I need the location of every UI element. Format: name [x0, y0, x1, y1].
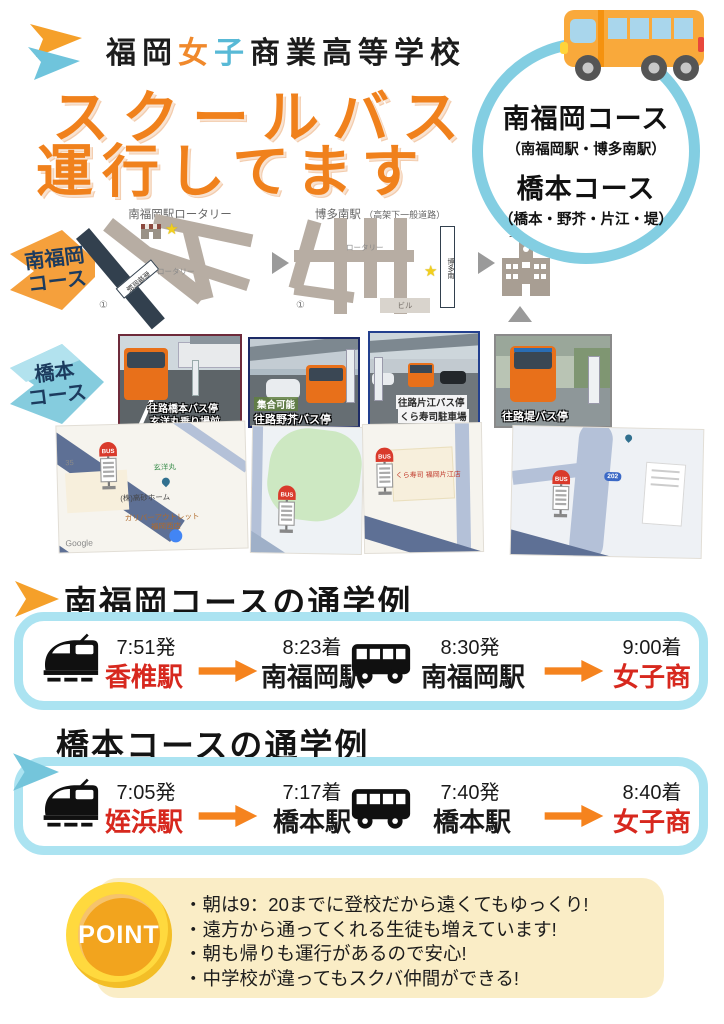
svg-text:BUS: BUS — [280, 492, 293, 498]
j2-seg2-depart-name: 橋本駅 — [414, 802, 530, 839]
j1-seg2-depart-name: 南福岡駅 — [410, 657, 536, 694]
photo2-caption-line2: 往路野芥バス停 — [254, 411, 331, 427]
j2-seg1-depart-name: 姪浜駅 — [92, 802, 196, 839]
route-arrow-right-icon — [478, 252, 495, 274]
orange-arrow-icon — [198, 805, 258, 827]
photo-katae-bus-stop: 往路片江バス停 くら寿司駐車場 — [368, 331, 480, 428]
j1-seg2-arrive-time: 9:00着 — [606, 631, 698, 660]
map-a-route1-marker: ① — [99, 300, 108, 311]
photo3-caption-line2: くら寿司駐車場 — [398, 409, 469, 423]
map-b-route1-marker: ① — [296, 300, 305, 311]
badge-course2-stops: （橋本・野芥・片江・堤） — [483, 208, 689, 229]
photo-noke-bus-stop: 集合可能 往路野芥バス停 — [248, 337, 360, 428]
point-bullet-2: ・遠方から通ってくれる生徒も増えています! — [184, 918, 654, 943]
orange-arrow-icon — [544, 805, 604, 827]
j1-seg1-arrive-time: 8:23着 — [262, 631, 362, 660]
photo-hashimoto-bus-stop: 往路橋本バス停 玄洋丸乗り場前 — [118, 334, 242, 428]
school-name-part1: 福岡 — [106, 37, 178, 70]
hashimoto-course-flag: 橋本 コース — [4, 340, 108, 428]
j2-seg2-arrive-time: 8:40着 — [606, 776, 698, 805]
badge-course1-name: 南福岡コース — [483, 97, 689, 136]
gmap3-kurasushi-label: くら寿司 福岡片江店 — [396, 469, 461, 480]
j2-seg2-depart-time: 7:40発 — [420, 776, 520, 805]
bus-stop-sign-icon: BUS — [97, 439, 120, 492]
point-badge: POINT — [66, 882, 172, 988]
j1-seg2-arrive-name: 女子商 — [606, 657, 698, 694]
map-b-station-label: 博多南 — [440, 226, 455, 308]
svg-text:BUS: BUS — [102, 449, 115, 455]
bus-stop-sign-icon: BUS — [373, 444, 396, 496]
map-b-star-icon: ★ — [424, 262, 437, 280]
j2-seg1-arrive-time: 7:17着 — [262, 776, 362, 805]
gmap4-route-badge: 202 — [604, 472, 621, 481]
google-watermark: Google — [65, 538, 93, 549]
map-b-rotary-label: ロータリー — [346, 242, 384, 253]
school-name-part3: 子 — [214, 37, 250, 70]
badge-course1-stops: （南福岡駅・博多南駅） — [483, 138, 689, 159]
school-bus-illustration-icon — [548, 4, 712, 92]
svg-text:BUS: BUS — [555, 477, 568, 483]
point-badge-label: POINT — [78, 921, 159, 950]
j1-seg2-depart-time: 8:30発 — [420, 631, 520, 660]
gmap-katae: くら寿司 福岡片江店 BUS — [363, 423, 483, 553]
j2-seg1-depart-time: 7:05発 — [100, 776, 192, 805]
bus-stop-sign-icon: BUS — [549, 467, 572, 519]
map-pin-icon — [624, 433, 634, 443]
route-arrow-right-icon — [272, 252, 289, 274]
gmap1-restaurant-label: 玄洋丸 — [153, 461, 176, 473]
badge-course2-name: 橋本コース — [483, 167, 689, 206]
school-name: 福岡女子商業高等学校 — [106, 28, 466, 72]
map-minamifukuoka-rotary: 南福岡駅ロータリー 南福岡駅 ★ ロータリー ① — [95, 206, 265, 316]
main-title-line2: 運行してます — [36, 126, 427, 208]
j1-seg1-depart-name: 香椎駅 — [92, 657, 196, 694]
orange-arrow-icon — [544, 660, 604, 682]
photo-tsutsumi-bus-stop: 往路堤バス停 — [494, 334, 612, 428]
bus-icon — [350, 783, 412, 831]
store-icon — [141, 224, 161, 240]
photo4-caption-line1: 往路堤バス停 — [502, 408, 568, 424]
point-bullets: ・朝は9：20までに登校だから遠くてもゆっくり! ・遠方から通ってくれる生徒も増… — [184, 893, 654, 991]
j1-seg1-depart-time: 7:51発 — [100, 631, 192, 660]
flyer-page: 福岡女子商業高等学校 スクールバス 運行してます 南福岡コース （南福岡駅・博多… — [0, 0, 724, 1024]
train-icon — [38, 632, 100, 686]
map-b-building-label: ビル — [380, 298, 430, 313]
bus-icon — [350, 638, 412, 686]
j2-seg2-arrive-name: 女子商 — [606, 802, 698, 839]
point-bullet-3: ・朝も帰りも運行があるので安心! — [184, 942, 654, 967]
school-name-part2: 女 — [178, 37, 214, 70]
school-name-part4: 商業高等学校 — [250, 37, 466, 70]
route-arrow-up-icon — [508, 306, 532, 322]
map-marker-icon — [169, 529, 182, 542]
photo3-caption-line1: 往路片江バス停 — [396, 395, 467, 409]
gmap-tsutsumi: 202 BUS — [511, 426, 704, 558]
point-bullet-1: ・朝は9：20までに登校だから遠くてもゆっくり! — [184, 893, 654, 918]
bus-stop-sign-icon: BUS — [275, 482, 298, 534]
gmap1-company-label: (株)高砂ホーム — [120, 492, 170, 504]
map-hakataminami: 博多南駅 （高架下一般道路） ビル 博多南 ★ ロータリー ① — [294, 206, 466, 316]
journey2-heading-arrow-icon — [12, 752, 60, 792]
orange-arrow-icon — [198, 660, 258, 682]
gmap-hashimoto: 35 玄洋丸 (株)高砂ホーム ガリバーアウトレット 福岡西店 Google B… — [56, 422, 247, 553]
gmap-noke: BUS — [251, 426, 363, 554]
map-b-title: 博多南駅 （高架下一般道路） — [294, 206, 466, 222]
map-pin-icon — [160, 476, 171, 487]
svg-text:BUS: BUS — [378, 454, 391, 460]
photo2-caption-line1: 集合可能 — [254, 397, 298, 411]
point-bullet-4: ・中学校が違ってもスクバ仲間ができる! — [184, 967, 654, 992]
gmap1-route-label: 35 — [65, 458, 74, 467]
map-a-star-icon: ★ — [165, 220, 178, 238]
map-a-rotary-label: ロータリー — [157, 266, 195, 277]
point-badge-inner: POINT — [78, 894, 160, 976]
